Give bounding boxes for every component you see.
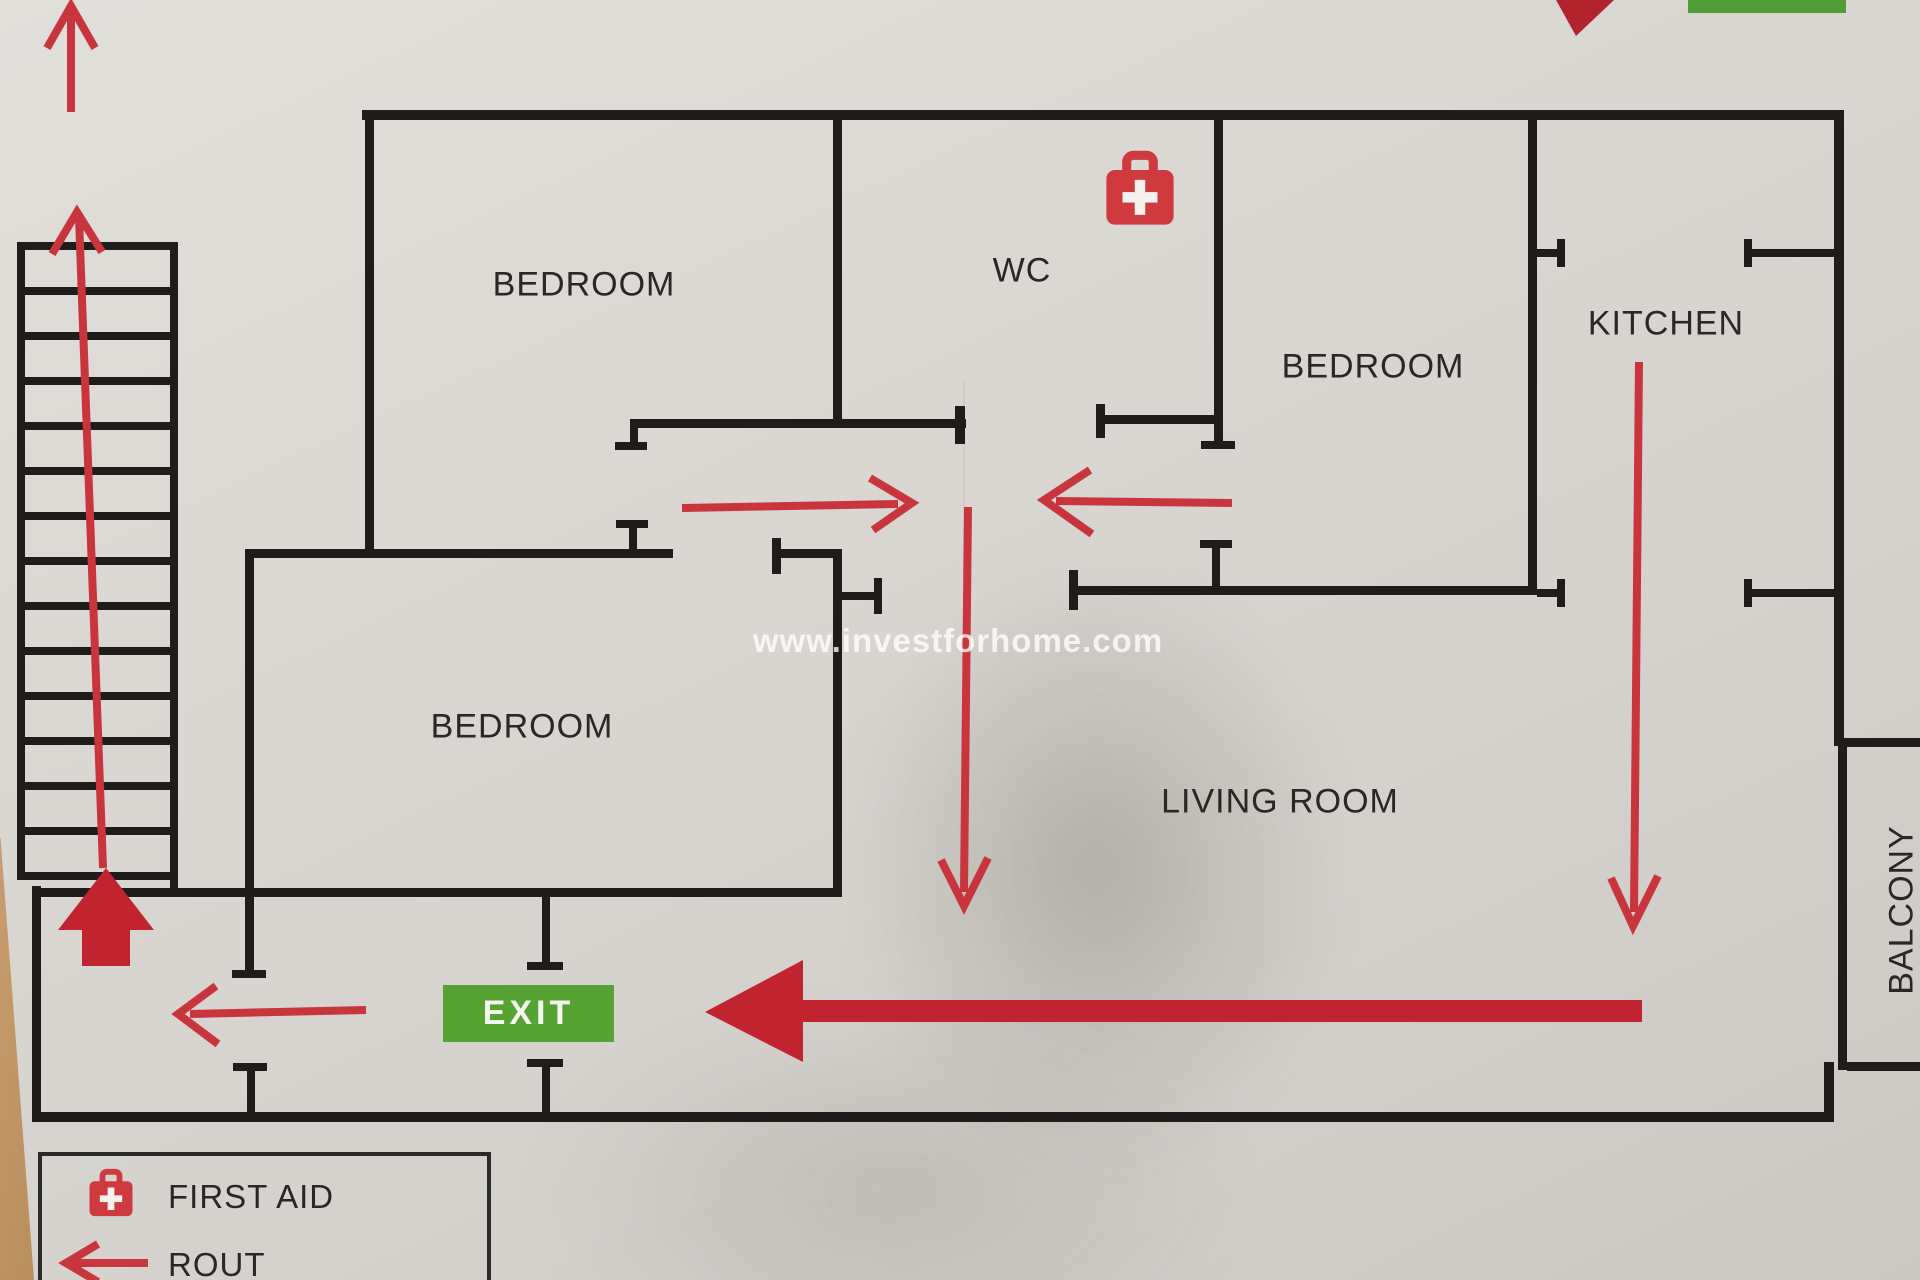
room-label-balcony: BALCONY [1883, 825, 1920, 995]
route-arrow-left-bedroom-icon [1044, 470, 1232, 534]
legend-route-arrow-icon [56, 1240, 156, 1280]
route-arrow-right-corridor-icon [682, 478, 912, 530]
room-label-bedroom-right: BEDROOM [1282, 348, 1465, 387]
room-label-wc: WC [993, 252, 1052, 291]
route-arrow-down-kitchen-icon [1611, 362, 1658, 926]
first-aid-icon [1098, 146, 1182, 234]
room-label-kitchen: KITCHEN [1588, 305, 1744, 344]
route-corner-arrowhead-icon [1556, 0, 1614, 36]
route-arrow-down-hall-icon [941, 507, 988, 906]
legend-first-aid-icon [84, 1166, 138, 1222]
route-arrow-up-stairs-icon [52, 212, 103, 868]
evacuation-plan-photo: EXIT BEDROOM WC BEDROOM KITCHEN BEDROOM … [0, 0, 1920, 1280]
corner-exit-sign [1688, 0, 1846, 13]
legend-route-label: ROUT [168, 1246, 266, 1280]
route-arrow-up-exit-icon [47, 6, 95, 112]
route-block-arrow-up-icon [58, 868, 154, 966]
watermark: www.investforhome.com [753, 622, 1163, 660]
route-arrow-left-exit-corridor-icon [178, 986, 366, 1044]
room-label-living-room: LIVING ROOM [1161, 783, 1399, 822]
room-label-bedroom-top-left: BEDROOM [493, 266, 676, 305]
route-block-arrow-left-icon [705, 960, 1642, 1062]
legend-first-aid-label: FIRST AID [168, 1178, 334, 1216]
exit-sign-label: EXIT [483, 994, 575, 1033]
room-label-bedroom-bottom-left: BEDROOM [431, 708, 614, 747]
exit-sign: EXIT [443, 985, 614, 1042]
